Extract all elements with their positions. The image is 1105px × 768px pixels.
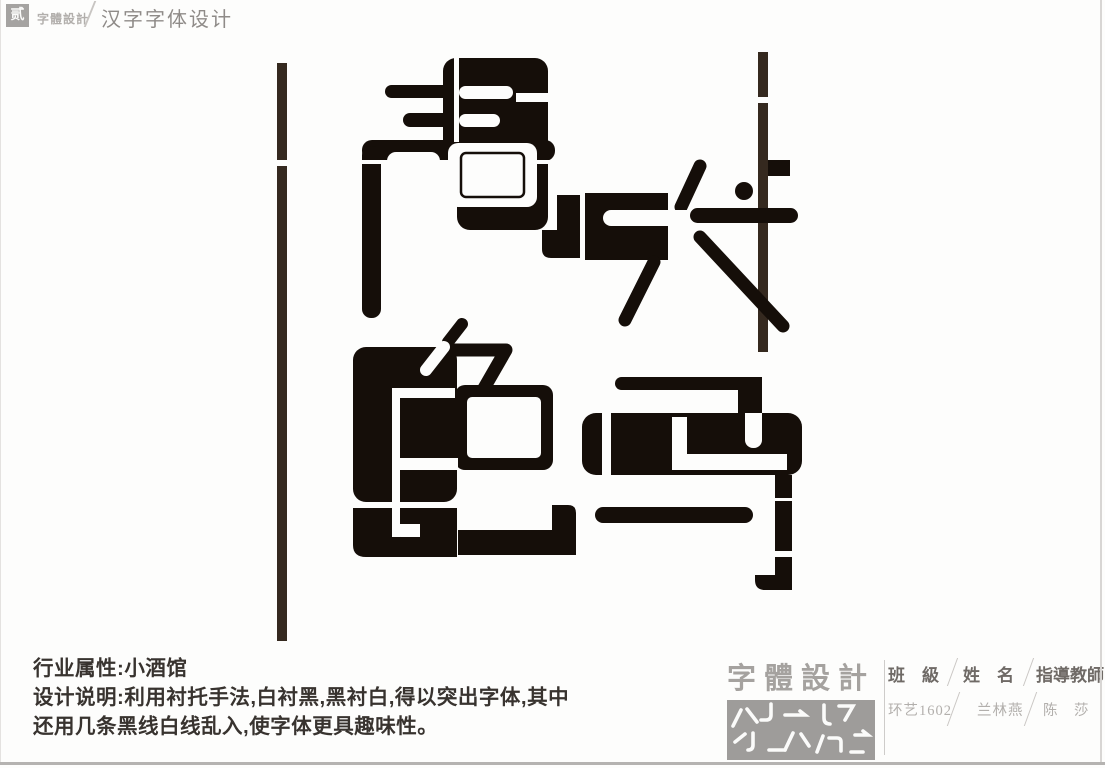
brand-strokes-box — [727, 700, 875, 760]
page-left-rule — [0, 0, 1, 762]
label-class: 班 級 — [888, 661, 939, 686]
guide-line-left — [277, 63, 287, 641]
value-class: 环艺1602 — [888, 699, 952, 720]
char-sheng — [350, 58, 580, 318]
label-name: 姓 名 — [963, 661, 1014, 686]
label-advisor: 指導教師 — [1036, 661, 1104, 686]
value-name: 兰林燕 — [977, 699, 1024, 720]
char-ma — [582, 377, 802, 590]
page-right-rule — [1100, 0, 1102, 762]
value-advisor: 陈 莎 — [1043, 699, 1090, 720]
page-bottom-rule — [0, 762, 1105, 765]
design-note-line-1: 设计说明:利用衬托手法,白衬黑,黑衬白,得以突出字体,其中 — [33, 683, 569, 712]
design-note-line-2: 还用几条黑线白线乱入,使字体更具趣味性。 — [33, 712, 569, 741]
char-se — [353, 324, 576, 557]
artwork-sheng-se-quan-ma — [0, 0, 1105, 768]
description-block: 行业属性:小酒馆 设计说明:利用衬托手法,白衬黑,黑衬白,得以突出字体,其中 还… — [33, 654, 569, 741]
industry-attribute-line: 行业属性:小酒馆 — [33, 654, 569, 683]
credits-vertical-divider — [884, 660, 885, 755]
poster-page: 贰 字體設計 汉字字体设计 — [0, 0, 1105, 768]
credits-brand: 字體設計 — [727, 655, 875, 697]
